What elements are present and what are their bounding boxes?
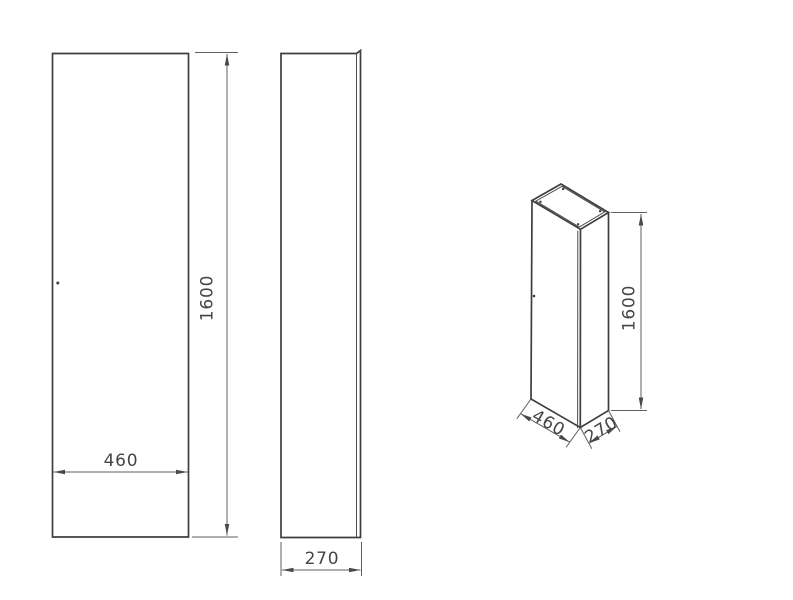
front-door-knob-dot [56, 282, 59, 285]
drawing-canvas: 460 1600 270 [0, 0, 793, 600]
front-height-dim-label: 1600 [198, 275, 218, 321]
iso-top-hole-dot [577, 223, 579, 225]
side-view: 270 [281, 51, 362, 577]
iso-top-hole-dot [599, 210, 601, 212]
side-view-outline [281, 51, 361, 538]
iso-top-hole-dot [539, 201, 541, 203]
front-view: 460 1600 [53, 53, 239, 538]
iso-door-knob-dot [533, 295, 536, 298]
iso-depth-dim-label: 270 [581, 413, 621, 448]
iso-left-edge [531, 201, 532, 400]
front-width-dim-label: 460 [104, 451, 139, 471]
iso-height-dim-label: 1600 [620, 285, 640, 331]
iso-width-ext-right [566, 428, 580, 448]
iso-top-hole-dot [562, 188, 564, 190]
side-depth-dim-label: 270 [305, 549, 340, 569]
iso-width-dim-label: 460 [528, 406, 568, 441]
cabinet-technical-drawing: 460 1600 270 [0, 0, 793, 600]
isometric-view: 1600 460 270 [517, 184, 647, 449]
